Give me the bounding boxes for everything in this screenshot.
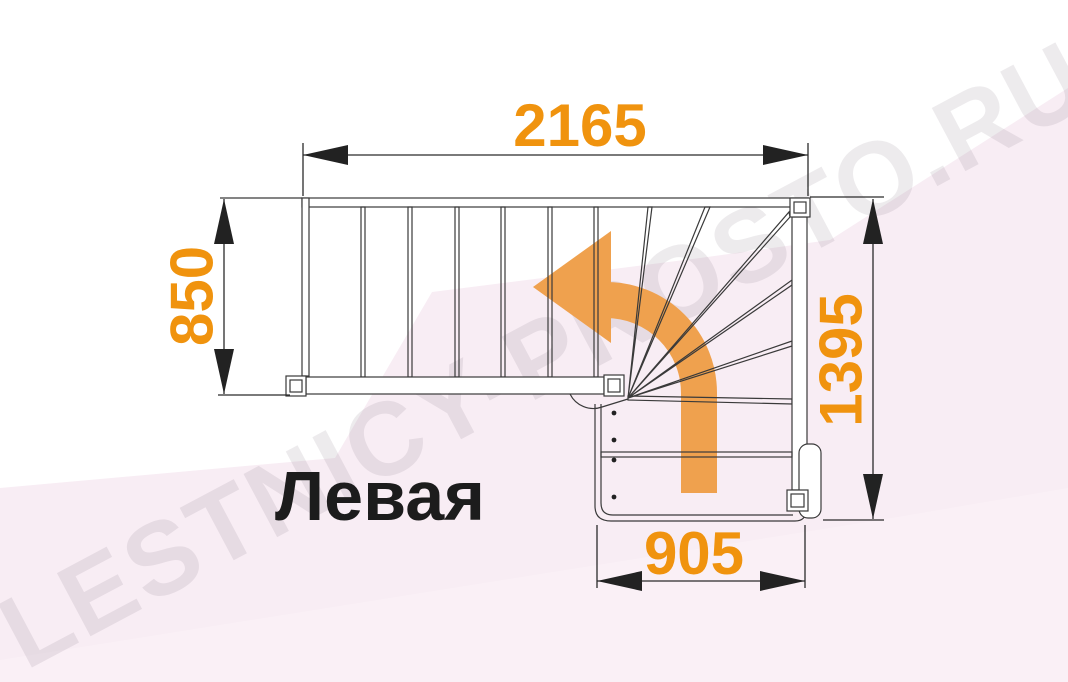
post-outer [286,376,306,396]
staircase-plan-page: LESTNICY-PROSTO.RU [0,0,1068,682]
dot-marker [612,411,617,416]
newel-post-inner-corner [604,375,624,396]
newel-post-top-right [790,198,810,217]
dimension-value-left: 850 [159,246,226,346]
dimension-value-top: 2165 [513,92,646,159]
dot-marker [612,495,617,500]
dot-marker [612,438,617,443]
dimension-arrowhead-up [214,199,234,244]
post-outer [790,198,810,217]
newel-post-bottom-left [286,376,306,396]
dimension-left-850: 850 [159,199,291,395]
dimension-top-2165: 2165 [303,92,808,196]
tread-line [361,207,365,377]
dimension-value-right: 1395 [808,293,875,426]
newel-post-bottom-right [787,490,808,511]
post-outer [787,490,808,511]
post-outer [604,375,624,396]
dimension-arrowhead-down [214,349,234,394]
dot-marker [612,458,617,463]
top-stringer [302,198,808,207]
left-edge [302,198,309,376]
staircase-plan-diagram: LESTNICY-PROSTO.RU [0,0,1068,682]
stair-type-label: Левая [275,457,485,535]
dimension-value-bottom: 905 [644,520,744,587]
handrail-bar [306,377,604,394]
dimension-arrowhead-left [303,145,348,165]
